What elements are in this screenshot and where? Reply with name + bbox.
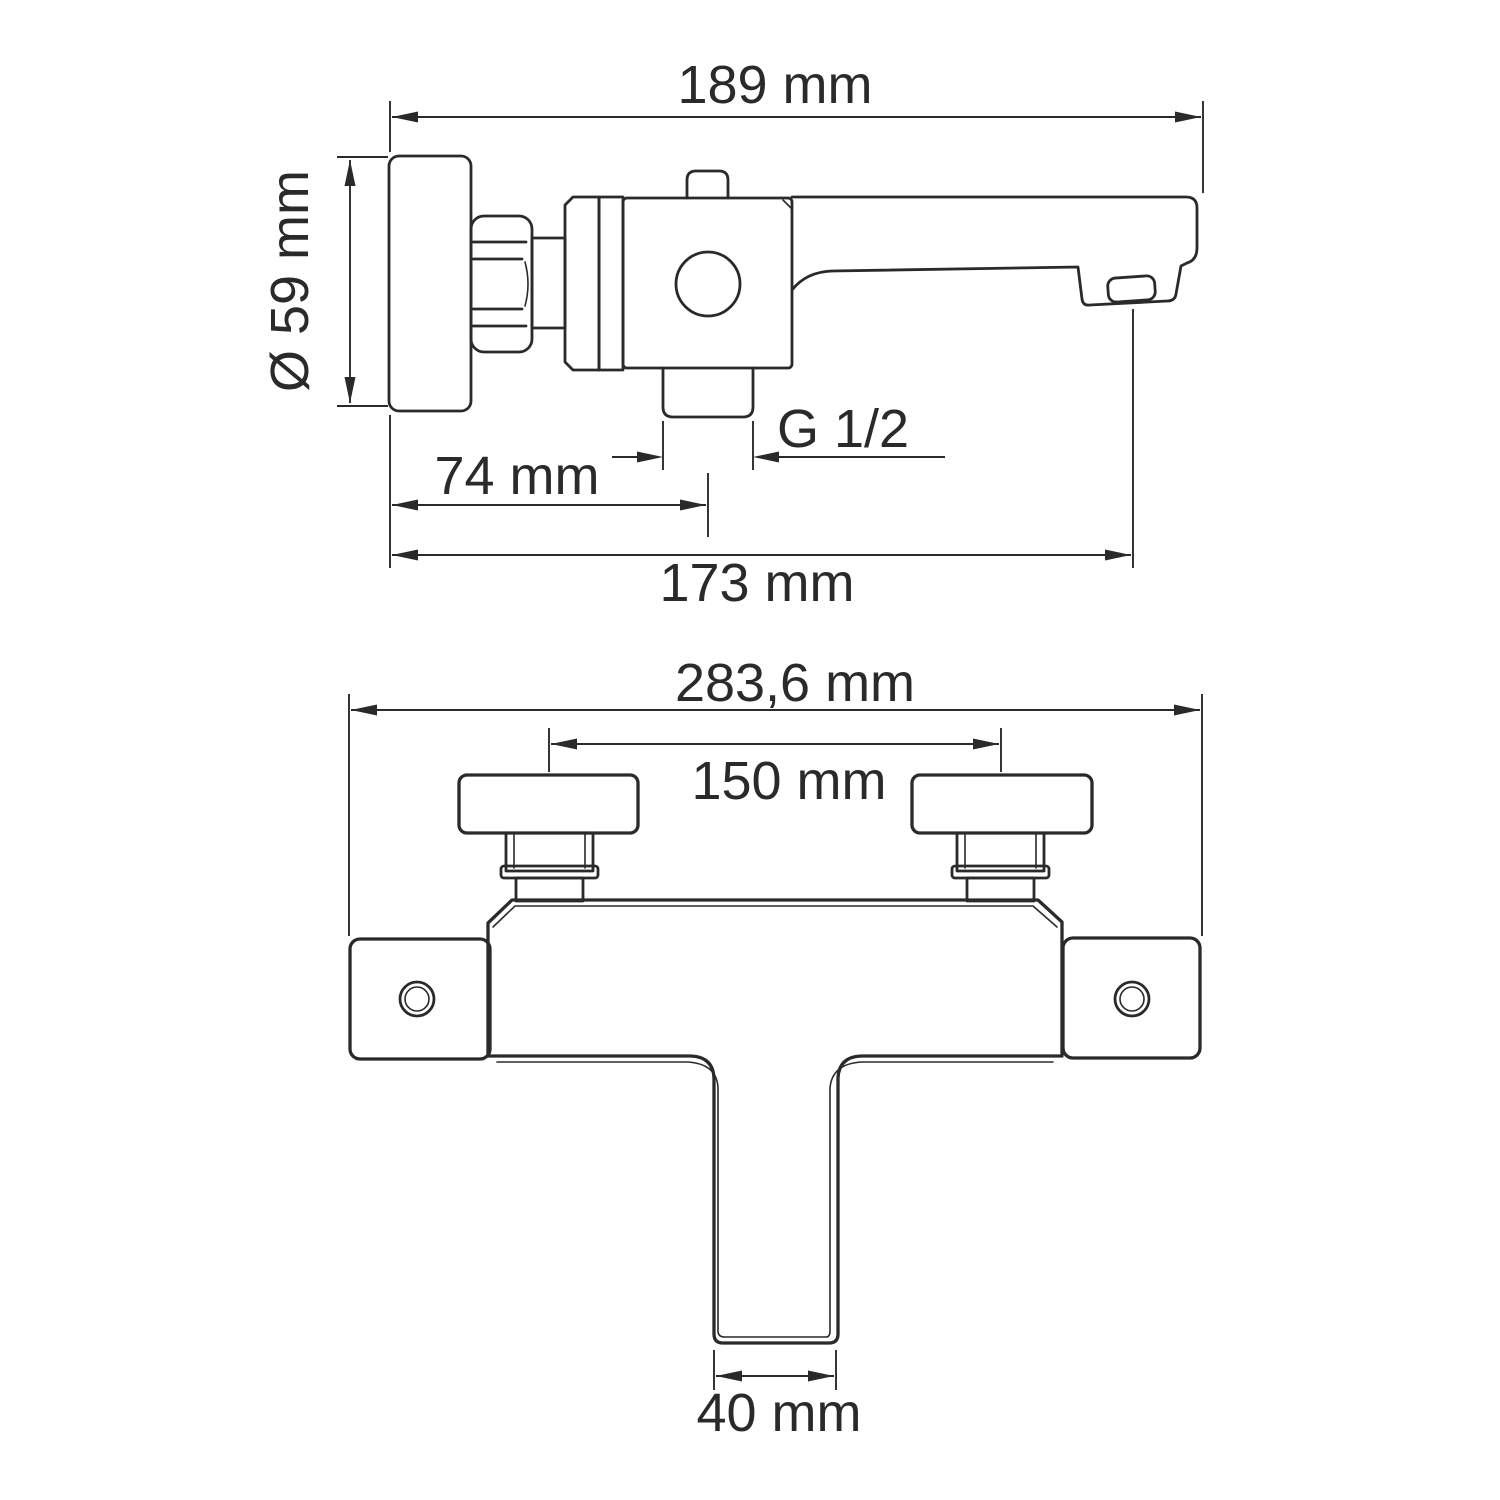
side-body-chamfer [783, 200, 791, 208]
front-body-top-highlight [493, 906, 1057, 927]
front-right-flange [912, 775, 1092, 833]
front-view [350, 775, 1200, 1343]
arrow-right-icon [808, 1371, 834, 1382]
front-right-nut [952, 833, 1049, 901]
side-sleeve-ring [599, 197, 623, 370]
arrow-right-icon [637, 452, 663, 463]
dim-label-thread: G 1/2 [777, 399, 909, 459]
side-wall-flange [389, 156, 471, 411]
arrow-right-icon [680, 500, 706, 511]
side-cartridge-circle [676, 252, 740, 316]
arrow-right-icon [973, 739, 999, 750]
arrow-left-icon [551, 739, 577, 750]
dimension-40: 40 mm [696, 1350, 861, 1443]
dimension-diameter-59: Ø 59 mm [260, 157, 388, 406]
dim-label-diameter-59: Ø 59 mm [260, 170, 320, 392]
arrow-left-icon [392, 550, 418, 561]
front-left-flange [459, 775, 638, 833]
front-left-handle [350, 939, 490, 1059]
dim-label-173: 173 mm [659, 553, 854, 613]
arrow-left-icon [753, 452, 779, 463]
side-sleeve [565, 197, 599, 370]
side-connector [532, 238, 565, 328]
side-hex-nut [471, 216, 532, 352]
side-spout [792, 197, 1197, 305]
side-diverter-button [687, 171, 728, 198]
arrow-up-icon [345, 160, 356, 186]
arrow-left-icon [392, 500, 418, 511]
arrow-left-icon [716, 1371, 742, 1382]
side-thread-pipe [663, 368, 753, 417]
front-body-bottom-highlight [497, 1062, 1053, 1337]
faucet-dimension-drawing: 189 mm Ø 59 mm G 1/2 74 m [0, 0, 1500, 1500]
front-body [488, 900, 1062, 1343]
arrow-left-icon [392, 112, 418, 123]
side-view-dimensions: 189 mm Ø 59 mm G 1/2 74 m [260, 55, 1203, 613]
side-aerator [1107, 275, 1156, 302]
dimension-150: 150 mm [549, 728, 1001, 811]
arrow-right-icon [1105, 550, 1131, 561]
dim-label-40: 40 mm [696, 1383, 861, 1443]
dim-label-74: 74 mm [434, 446, 599, 506]
dim-label-150: 150 mm [691, 751, 886, 811]
front-left-nut [501, 833, 598, 901]
side-valve-body [623, 198, 792, 368]
dim-label-2836: 283,6 mm [675, 653, 915, 713]
technical-drawing-page: 189 mm Ø 59 mm G 1/2 74 m [0, 0, 1500, 1500]
arrow-left-icon [351, 705, 377, 716]
arrow-right-icon [1175, 112, 1201, 123]
front-right-handle [1063, 938, 1200, 1058]
dim-label-189: 189 mm [677, 55, 872, 115]
side-view [389, 156, 1197, 417]
dimension-74: 74 mm [390, 415, 708, 568]
front-view-dimensions: 283,6 mm 150 mm 40 mm [349, 653, 1202, 1443]
arrow-right-icon [1174, 705, 1200, 716]
arrow-down-icon [345, 377, 356, 403]
dimension-189: 189 mm [390, 55, 1203, 193]
